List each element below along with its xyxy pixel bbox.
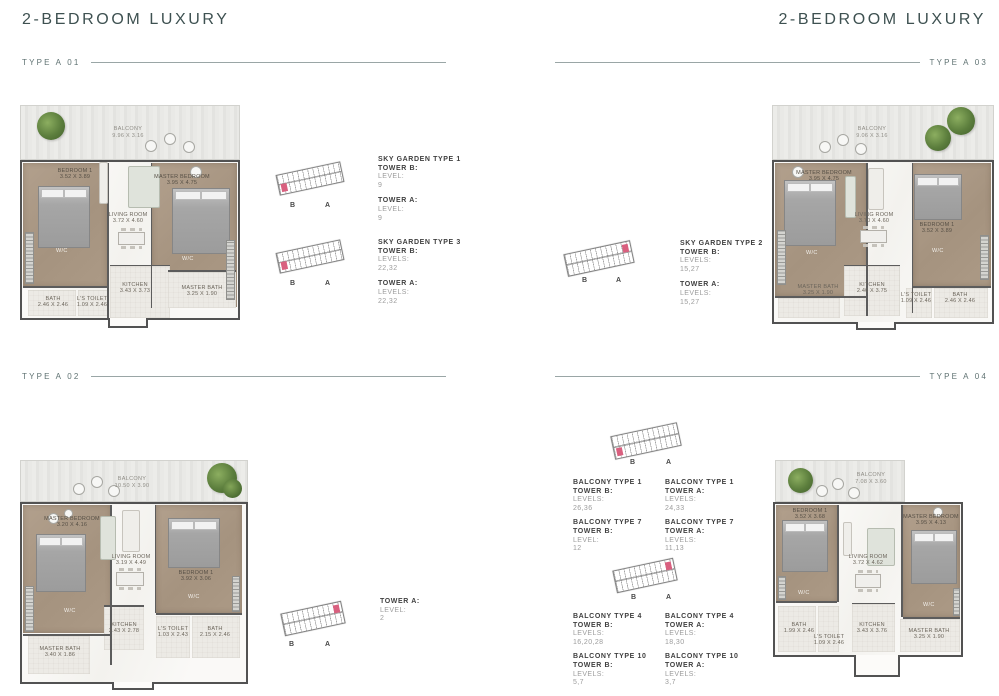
- room-label-master-bedroom: MASTER BEDROOM3.20 X 4.16: [44, 516, 100, 529]
- plant-icon: [947, 107, 975, 135]
- chaise-icon: [868, 168, 884, 210]
- key-plan-letter-b: B: [290, 202, 296, 209]
- balcony-chair-icon: [848, 487, 860, 499]
- sofa-icon: [128, 166, 160, 208]
- bed-icon: [784, 180, 836, 246]
- section-label-a03: TYPE A 03: [930, 58, 989, 67]
- balcony-chair-icon: [145, 140, 157, 152]
- key-plan-letter-a: A: [666, 594, 672, 601]
- balcony-chair-icon: [832, 478, 844, 490]
- levels-col-tower-b: BALCONY TYPE 4 TOWER B: LEVELS: 16,20,28…: [573, 613, 665, 694]
- wall: [110, 265, 170, 267]
- levels-col-tower-a: BALCONY TYPE 4 TOWER A: LEVELS: 18,30 BA…: [665, 613, 757, 694]
- room-label-bedroom1: BEDROOM 13.52 X 3.89: [58, 168, 93, 181]
- section-header-a02: TYPE A 02: [22, 372, 446, 381]
- key-plan-letter-b: B: [582, 277, 588, 284]
- bed-icon: [36, 534, 86, 592]
- key-plan-letter-a: A: [325, 641, 331, 648]
- room-label-bath: BATH1.99 X 2.46: [784, 622, 814, 635]
- key-plan-letter-b: B: [631, 594, 637, 601]
- section-label-a04: TYPE A 04: [930, 372, 989, 381]
- balcony-chair-icon: [183, 141, 195, 153]
- room-label-living: LIVING ROOM3.72 X 4.62: [849, 554, 888, 567]
- room-label-master-bath: MASTER BATH3.40 X 1.86: [40, 646, 81, 659]
- room-label-wc: W/C: [932, 248, 944, 254]
- room-label-bedroom1: BEDROOM 13.52 X 3.89: [920, 222, 955, 235]
- plant-icon: [925, 125, 951, 151]
- room-label-master-bedroom: MASTER BEDROOM3.95 X 4.13: [903, 514, 959, 527]
- room-label-bedroom1: BEDROOM 13.92 X 3.06: [179, 570, 214, 583]
- room-label-wc: W/C: [798, 590, 810, 596]
- room-label-wc: W/C: [923, 602, 935, 608]
- closet-shelf-icon: [25, 232, 34, 284]
- dining-table-icon: [855, 574, 881, 588]
- dining-table-icon: [860, 230, 887, 243]
- bed-icon: [911, 530, 957, 584]
- wall: [23, 634, 110, 636]
- floor-plan-a01: BALCONY9.96 X 3.16 BEDROOM 13.52 X 3.89 …: [20, 100, 240, 328]
- wall: [104, 605, 144, 607]
- room-label-kitchen: KITCHEN2.43 X 2.78: [109, 622, 139, 635]
- key-plan-letter-a: A: [616, 277, 622, 284]
- levels-col-tower-a: BALCONY TYPE 1 TOWER A: LEVELS: 24,33 BA…: [665, 479, 757, 560]
- key-plan-letter-a: A: [325, 202, 331, 209]
- room-label-bedroom1: BEDROOM 13.52 X 3.68: [793, 508, 828, 521]
- key-plan: [612, 558, 677, 593]
- room-label-living: LIVING ROOM3.19 X 4.49: [112, 554, 151, 567]
- room-label-master-bedroom: MASTER BEDROOM3.95 X 4.75: [154, 174, 210, 187]
- levels-block-a02: TOWER A: LEVEL: 2: [380, 598, 420, 631]
- entry-vestibule: [854, 655, 900, 677]
- wall: [852, 603, 895, 605]
- section-rule: [91, 376, 447, 377]
- wall: [844, 265, 900, 267]
- key-plan: [276, 239, 345, 273]
- room-label-living: LIVING ROOM3.70 X 4.60: [855, 212, 894, 225]
- room-label-balcony: BALCONY9.06 X 3.16: [856, 126, 887, 139]
- room-label-bath: BATH2.46 X 2.46: [38, 296, 68, 309]
- chaise-icon: [122, 510, 140, 552]
- wall: [23, 286, 107, 288]
- wall: [837, 505, 839, 602]
- room-label-wc: W/C: [182, 256, 194, 262]
- floor-plan-a02: BALCONY10.50 X 3.90 MASTER BEDROOM3.20 X…: [20, 458, 248, 690]
- levels-block-a01-1: SKY GARDEN TYPE 1 TOWER B: LEVEL: 9 TOWE…: [378, 156, 461, 230]
- room-label-balcony: BALCONY10.50 X 3.90: [115, 476, 150, 489]
- closet-shelf-icon: [953, 588, 960, 616]
- room-label-bath: BATH2.46 X 2.46: [945, 292, 975, 305]
- closet-shelf-icon: [778, 576, 786, 600]
- dining-table-icon: [116, 572, 144, 586]
- room-label-wc: W/C: [806, 250, 818, 256]
- chaise-icon: [99, 162, 108, 204]
- page-title-left: 2-BEDROOM LUXURY: [22, 11, 230, 29]
- room-label-kitchen: KITCHEN2.40 X 3.75: [857, 282, 887, 295]
- bed-icon: [168, 518, 220, 568]
- bed-icon: [782, 520, 828, 572]
- key-plan: [610, 422, 682, 460]
- section-rule: [555, 376, 920, 377]
- section-header-a03: TYPE A 03: [555, 58, 988, 67]
- room-label-wc: W/C: [188, 594, 200, 600]
- room-label-toilet: L'S TOILET1.09 X 2.46: [814, 634, 844, 647]
- chaise-icon: [843, 522, 852, 556]
- wall: [913, 286, 991, 288]
- balcony-chair-icon: [855, 143, 867, 155]
- balcony-chair-icon: [819, 141, 831, 153]
- levels-col-tower-b: BALCONY TYPE 1 TOWER B: LEVELS: 26,36 BA…: [573, 479, 665, 560]
- room-label-kitchen: KITCHEN3.43 X 3.76: [857, 622, 887, 635]
- key-plan-letter-b: B: [289, 641, 295, 648]
- plant-icon: [207, 463, 237, 493]
- room-label-balcony: BALCONY9.96 X 3.16: [112, 126, 143, 139]
- section-header-a04: TYPE A 04: [555, 372, 988, 381]
- bed-icon: [38, 186, 90, 248]
- key-plan: [276, 161, 345, 195]
- floor-plan-a04: BALCONY7.08 X 3.60 BEDROOM 13.52 X 3.68 …: [768, 458, 968, 695]
- closet-shelf-icon: [777, 230, 786, 285]
- room-master-bath: [778, 298, 840, 318]
- floor-plan-a03: BALCONY9.06 X 3.16 MASTER BEDROOM3.95 X …: [772, 100, 994, 330]
- room-label-living: LIVING ROOM3.72 X 4.60: [109, 212, 148, 225]
- room-label-kitchen: KITCHEN3.43 X 3.73: [120, 282, 150, 295]
- entry-vestibule: [856, 322, 896, 330]
- key-plan-letter-b: B: [290, 280, 296, 287]
- room-label-toilet: L'S TOILET1.09 X 2.46: [901, 292, 931, 305]
- room-label-toilet: L'S TOILET1.09 X 2.46: [77, 296, 107, 309]
- key-plan: [280, 601, 345, 636]
- wall: [903, 617, 960, 619]
- balcony-chair-icon: [837, 134, 849, 146]
- page-title-right: 2-BEDROOM LUXURY: [778, 11, 986, 29]
- closet-shelf-icon: [232, 576, 240, 612]
- room-label-master-bath: MASTER BATH3.25 X 1.90: [182, 285, 223, 298]
- balcony-chair-icon: [816, 485, 828, 497]
- key-plan-letter-a: A: [666, 459, 672, 466]
- room-label-toilet: L'S TOILET1.03 X 2.43: [158, 626, 188, 639]
- bed-icon: [172, 188, 230, 254]
- room-label-master-bath: MASTER BATH3.25 X 1.90: [909, 628, 950, 641]
- bed-icon: [914, 174, 962, 220]
- levels-block-a01-2: SKY GARDEN TYPE 3 TOWER B: LEVELS: 22,32…: [378, 239, 461, 313]
- wall: [776, 601, 837, 603]
- wall: [912, 163, 914, 313]
- levels-block-a03: SKY GARDEN TYPE 2 TOWER B: LEVELS: 15,27…: [680, 240, 763, 314]
- balcony-chair-icon: [73, 483, 85, 495]
- room-label-master-bedroom: MASTER BEDROOM3.95 X 4.75: [796, 170, 852, 183]
- levels-block-a04-1: BALCONY TYPE 1 TOWER B: LEVELS: 26,36 BA…: [573, 479, 757, 560]
- room-label-balcony: BALCONY7.08 X 3.60: [855, 472, 886, 485]
- section-rule: [555, 62, 920, 63]
- room-label-wc: W/C: [56, 248, 68, 254]
- section-label-a02: TYPE A 02: [22, 372, 81, 381]
- key-plan: [563, 240, 634, 277]
- section-rule: [91, 62, 447, 63]
- plant-icon: [37, 112, 65, 140]
- wall: [156, 613, 242, 615]
- closet-shelf-icon: [25, 586, 34, 632]
- plant-icon: [788, 468, 813, 493]
- entry-vestibule: [108, 318, 148, 328]
- dining-table-icon: [118, 232, 145, 245]
- closet-shelf-icon: [980, 235, 989, 280]
- balcony-chair-icon: [91, 476, 103, 488]
- room-label-bath: BATH2.15 X 2.46: [200, 626, 230, 639]
- closet-shelf-icon: [226, 240, 235, 300]
- room-label-wc: W/C: [64, 608, 76, 614]
- key-plan-letter-a: A: [325, 280, 331, 287]
- key-plan-letter-b: B: [630, 459, 636, 466]
- levels-block-a04-2: BALCONY TYPE 4 TOWER B: LEVELS: 16,20,28…: [573, 613, 757, 694]
- balcony-chair-icon: [164, 133, 176, 145]
- section-header-a01: TYPE A 01: [22, 58, 446, 67]
- wall: [155, 505, 157, 613]
- section-label-a01: TYPE A 01: [22, 58, 81, 67]
- entry-vestibule: [112, 682, 154, 690]
- room-label-master-bath: MASTER BATH3.25 X 1.90: [798, 284, 839, 297]
